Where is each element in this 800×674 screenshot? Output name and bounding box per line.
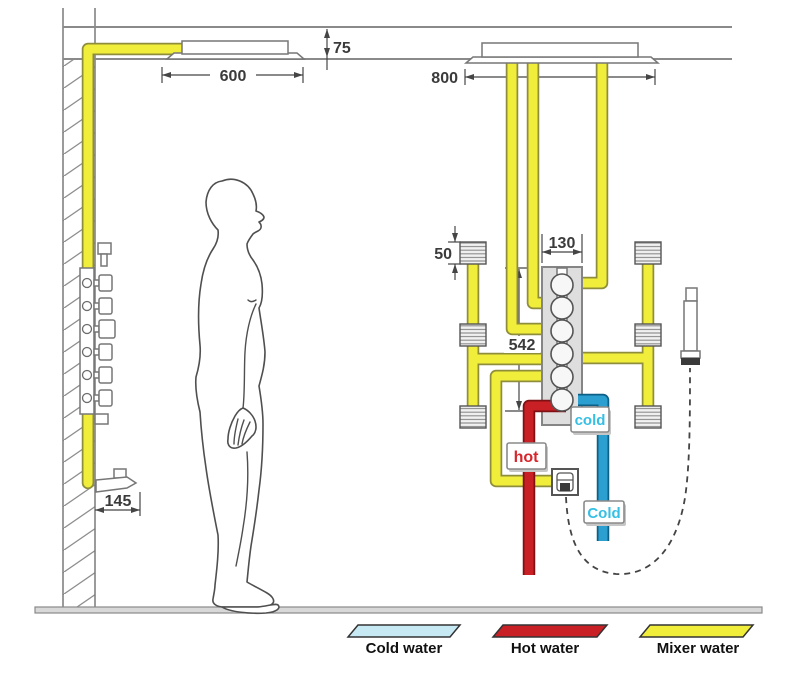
valve-knob	[551, 274, 573, 296]
cold-supply-label: Cold	[587, 505, 620, 522]
shower-head-800-box	[482, 43, 638, 57]
valve-knob	[551, 320, 573, 342]
legend: Cold water Hot water Mixer water	[348, 625, 753, 657]
panel-knob	[83, 302, 92, 311]
hose-outlet	[552, 469, 578, 495]
panel-knob	[83, 371, 92, 380]
body-jet	[460, 406, 486, 428]
body-jet	[460, 324, 486, 346]
panel-handle	[99, 367, 112, 383]
panel-body	[80, 268, 94, 414]
dim-600-label: 600	[220, 68, 247, 85]
dim-542-label: 542	[509, 337, 536, 354]
dim-130-label: 130	[549, 235, 576, 252]
valve-knob	[551, 366, 573, 388]
body-jet	[635, 242, 661, 264]
panel-top-handle-stem	[101, 254, 107, 266]
panel-knob	[83, 348, 92, 357]
legend-label-mixer-water: Mixer water	[657, 640, 740, 657]
panel-knob	[83, 279, 92, 288]
panel-handle	[99, 275, 112, 291]
cold-label: cold	[575, 412, 606, 429]
ceiling-shower-head-600	[167, 41, 304, 59]
hand-shower-collar	[681, 351, 700, 358]
body-jet	[460, 242, 486, 264]
shower-panel	[80, 243, 115, 424]
panel-top-handle	[98, 243, 111, 254]
tub-spout	[96, 469, 136, 492]
panel-handles	[94, 275, 115, 406]
body-jet	[635, 406, 661, 428]
body-jet	[635, 324, 661, 346]
shower-head-600-box	[182, 41, 288, 54]
panel-handle	[99, 390, 112, 406]
shower-installation-diagram: 600 75 800 50 130 145	[0, 0, 800, 674]
hose-outlet-connector	[560, 483, 570, 491]
dim-800-label: 800	[431, 70, 458, 87]
hand-shower-handle	[684, 301, 697, 351]
diagram-canvas: 600 75 800 50 130 145	[0, 0, 800, 674]
hand-shower-head	[686, 288, 697, 301]
valve-knob	[551, 297, 573, 319]
valve-knob	[551, 343, 573, 365]
shower-head-800-flange	[466, 57, 658, 63]
legend-swatch-mixer-water	[640, 625, 753, 637]
human-silhouette	[196, 179, 274, 607]
legend-label-cold-water: Cold water	[366, 640, 443, 657]
spout-body	[96, 477, 136, 492]
legend-swatch-hot-water	[493, 625, 607, 637]
hot-label: hot	[514, 449, 540, 466]
panel-knob	[83, 325, 92, 334]
legend-swatch-cold-water	[348, 625, 460, 637]
dim-50-label: 50	[434, 246, 452, 263]
hand-shower	[681, 288, 700, 365]
dim-75-label: 75	[333, 40, 351, 57]
human-figure	[196, 179, 279, 613]
valve-knob	[551, 389, 573, 411]
legend-label-hot-water: Hot water	[511, 640, 580, 657]
panel-handle	[99, 298, 112, 314]
floor-line	[35, 607, 762, 613]
hand-shower-base	[681, 358, 700, 365]
panel-knob	[83, 394, 92, 403]
panel-handle	[99, 320, 115, 338]
ceiling-shower-head-800	[466, 43, 658, 63]
dim-145-label: 145	[105, 493, 132, 510]
panel-bottom-handle	[95, 414, 108, 424]
panel-handle	[99, 344, 112, 360]
